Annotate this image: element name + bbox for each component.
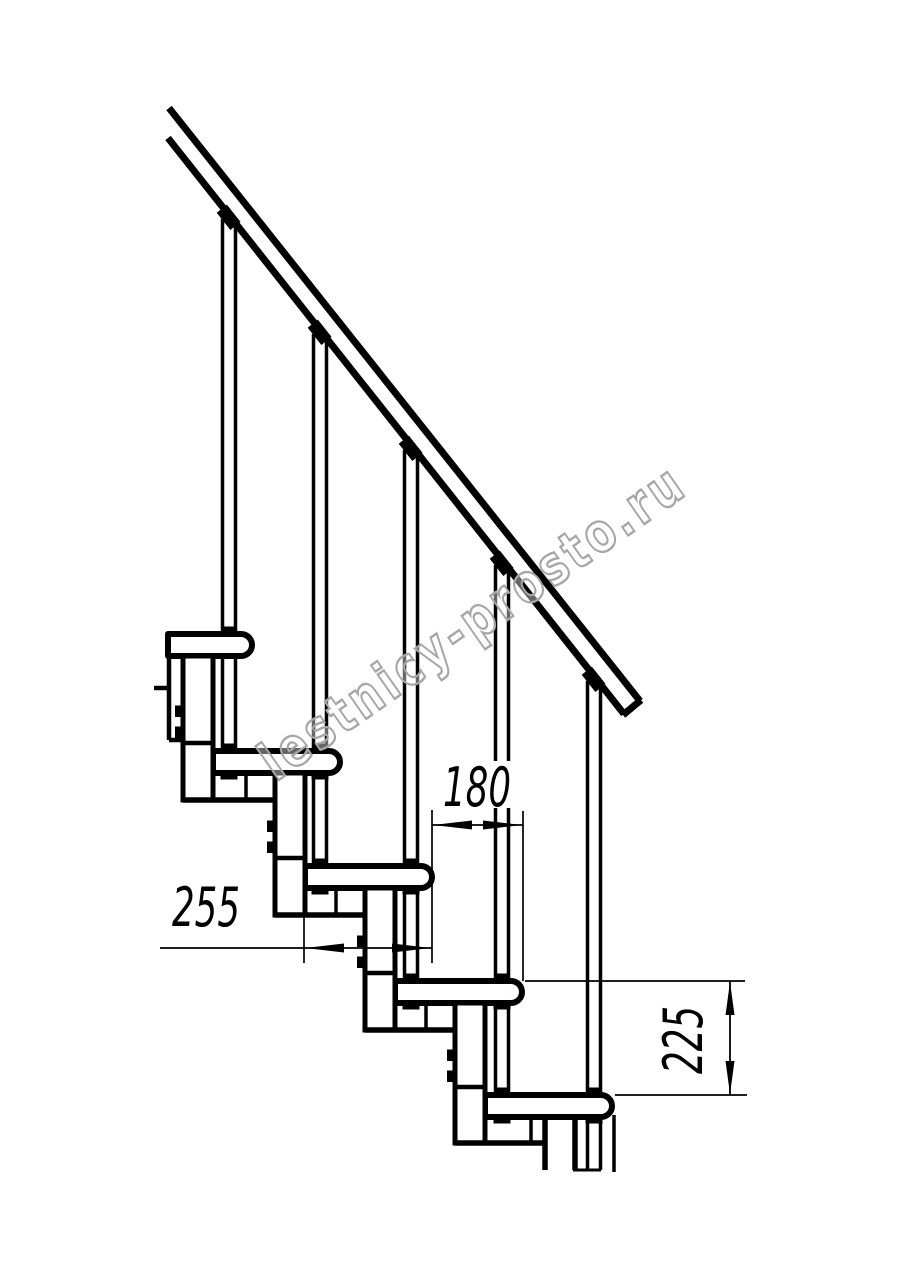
tread-5 <box>485 1095 612 1117</box>
handrail-end-cap <box>623 700 641 715</box>
tread-3 <box>305 866 432 888</box>
spine-box-1 <box>183 656 213 800</box>
spine-box-4 <box>455 1003 485 1143</box>
spine-box-2 <box>275 773 305 915</box>
spine-box-3 <box>365 888 395 1030</box>
baluster-1 <box>223 219 236 751</box>
dimension-lines <box>160 825 730 1095</box>
baluster-2 <box>314 334 327 866</box>
baluster-4 <box>496 565 509 1095</box>
staircase-drawing-page: 180 255 225 lestnicy-prosto.ru <box>0 0 914 1280</box>
baluster-3 <box>405 450 418 981</box>
tread-1 <box>168 634 252 656</box>
bottom-module <box>545 1115 614 1172</box>
tread-4 <box>395 981 522 1003</box>
staircase-side-view-drawing: 180 255 225 lestnicy-prosto.ru <box>0 0 914 1280</box>
dim-going-label: 180 <box>443 756 511 819</box>
dim-rise-label: 225 <box>652 1006 715 1074</box>
dim-tread-depth-label: 255 <box>172 876 240 939</box>
